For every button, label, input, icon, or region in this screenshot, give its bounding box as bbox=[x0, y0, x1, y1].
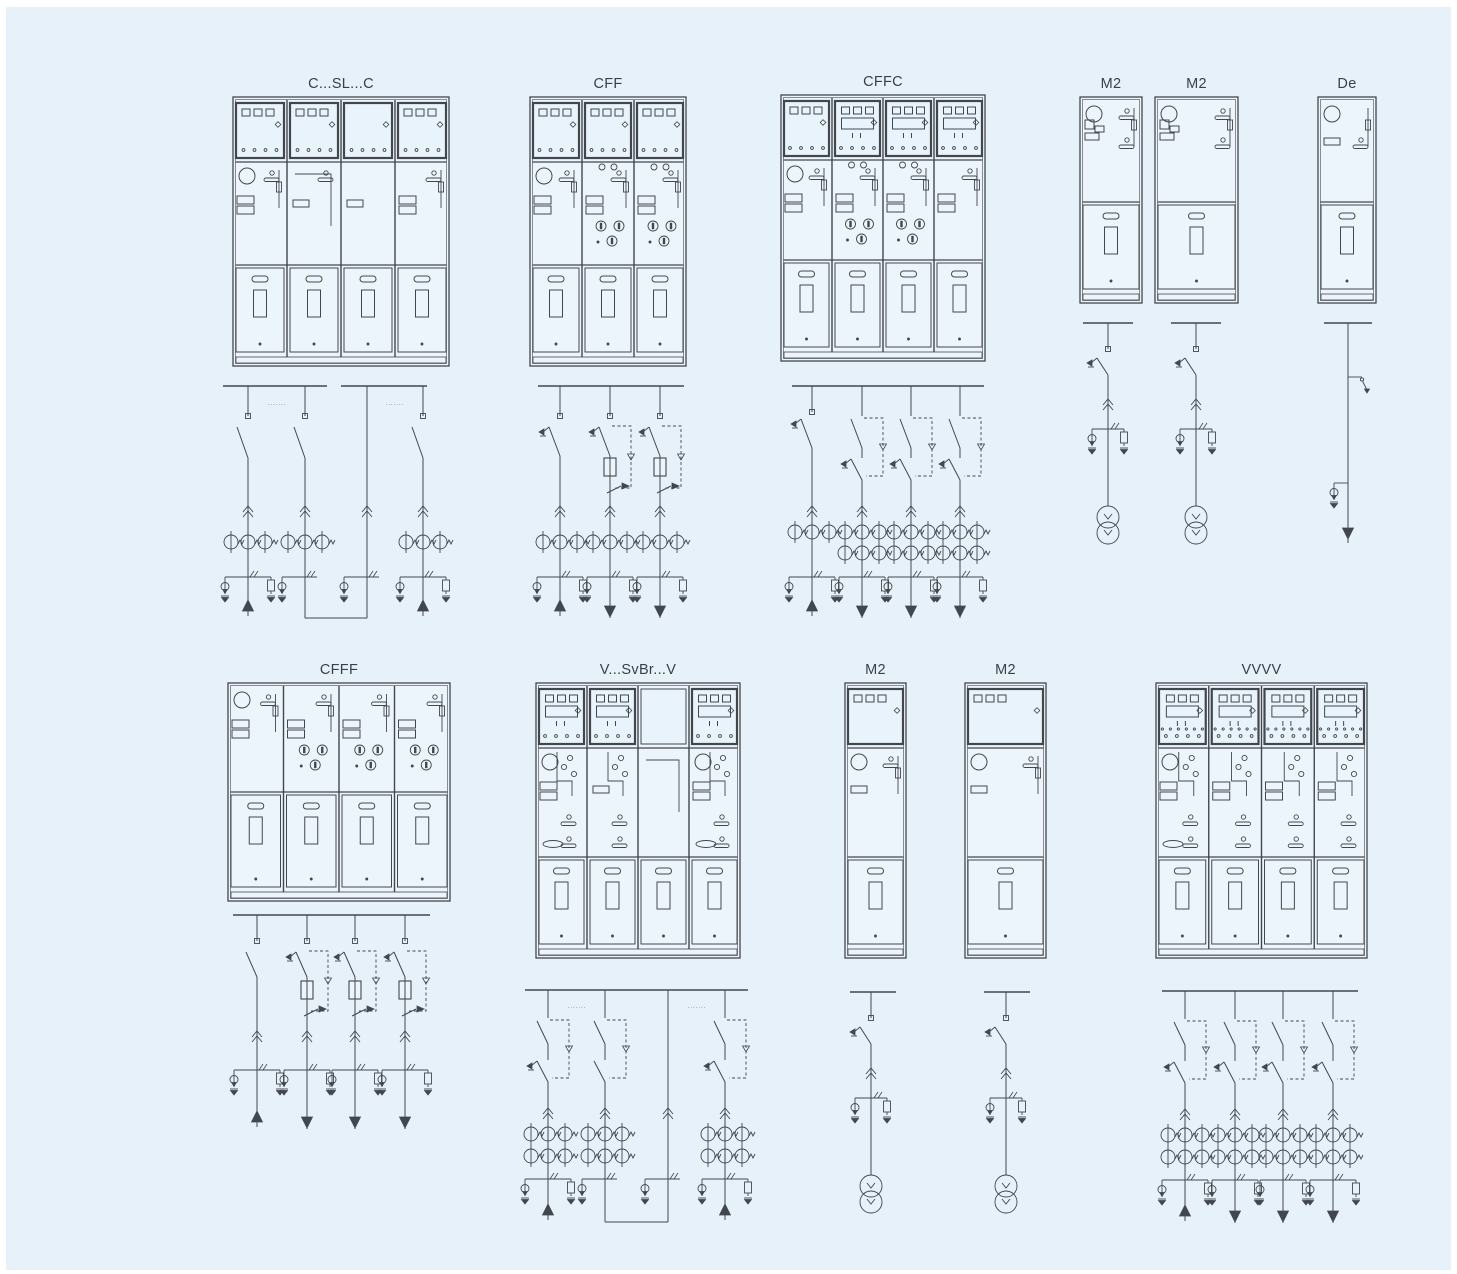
cabinet-de bbox=[1318, 97, 1376, 303]
single-line-cff bbox=[533, 386, 690, 618]
single-line-cslc: ·············· bbox=[221, 386, 453, 618]
dotted-note: ······· bbox=[268, 402, 287, 408]
single-line-m2-top-1 bbox=[1083, 323, 1133, 544]
unit-label-m2-top-2: M2 bbox=[1186, 76, 1207, 92]
unit-de: De bbox=[1318, 76, 1376, 543]
unit-label-vsvbrv: V...SvBr...V bbox=[600, 662, 676, 678]
unit-label-m2-bottom-1: M2 bbox=[865, 662, 886, 678]
unit-label-cffc: CFFC bbox=[863, 74, 903, 90]
unit-label-m2-bottom-2: M2 bbox=[995, 662, 1016, 678]
unit-m2-bottom-2: M2 bbox=[965, 662, 1046, 1213]
dotted-note: ······· bbox=[568, 1005, 587, 1011]
cabinet-cffc bbox=[781, 95, 985, 361]
cabinet-cfff bbox=[228, 683, 450, 901]
single-line-vsvbrv: ·············· bbox=[521, 990, 755, 1222]
unit-label-de: De bbox=[1337, 76, 1356, 92]
cabinet-cslc bbox=[233, 97, 449, 366]
unit-label-cfff: CFFF bbox=[320, 662, 358, 678]
unit-label-cslc: C...SL...C bbox=[308, 76, 374, 92]
unit-cfff: CFFF bbox=[228, 662, 450, 1129]
unit-vsvbrv: V...SvBr...V·············· bbox=[521, 662, 755, 1222]
unit-m2-top-1: M2 bbox=[1080, 76, 1142, 544]
unit-label-cff: CFF bbox=[593, 76, 622, 92]
unit-m2-top-2: M2 bbox=[1155, 76, 1238, 544]
single-line-vvvv bbox=[1158, 991, 1363, 1223]
single-line-m2-bottom-2 bbox=[984, 992, 1030, 1213]
cabinet-m2-top-2 bbox=[1155, 97, 1238, 303]
single-line-m2-bottom-1 bbox=[850, 992, 896, 1213]
unit-cslc: C...SL...C·············· bbox=[221, 76, 453, 618]
single-line-cfff bbox=[230, 915, 432, 1129]
unit-label-m2-top-1: M2 bbox=[1101, 76, 1122, 92]
unit-vvvv: VVVV bbox=[1156, 662, 1367, 1223]
cabinet-m2-bottom-2 bbox=[965, 683, 1046, 958]
switchgear-figure: C...SL...C··············CFFCFFCM2M2DeCFF… bbox=[0, 0, 1457, 1274]
single-line-m2-top-2 bbox=[1171, 323, 1221, 544]
cabinet-cff bbox=[530, 97, 686, 366]
unit-m2-bottom-1: M2 bbox=[845, 662, 906, 1213]
unit-cff: CFF bbox=[530, 76, 690, 618]
single-line-de bbox=[1324, 323, 1372, 543]
cabinet-m2-top-1 bbox=[1080, 97, 1142, 303]
unit-label-vvvv: VVVV bbox=[1242, 662, 1282, 678]
cabinet-vsvbrv bbox=[536, 683, 740, 958]
cabinet-vvvv bbox=[1156, 683, 1367, 958]
dotted-note: ······· bbox=[386, 402, 405, 408]
dotted-note: ······· bbox=[688, 1005, 707, 1011]
cabinet-m2-bottom-1 bbox=[845, 683, 906, 958]
single-line-cffc bbox=[785, 386, 990, 618]
diagram-canvas: C...SL...C··············CFFCFFCM2M2DeCFF… bbox=[0, 0, 1457, 1274]
unit-cffc: CFFC bbox=[781, 74, 990, 618]
